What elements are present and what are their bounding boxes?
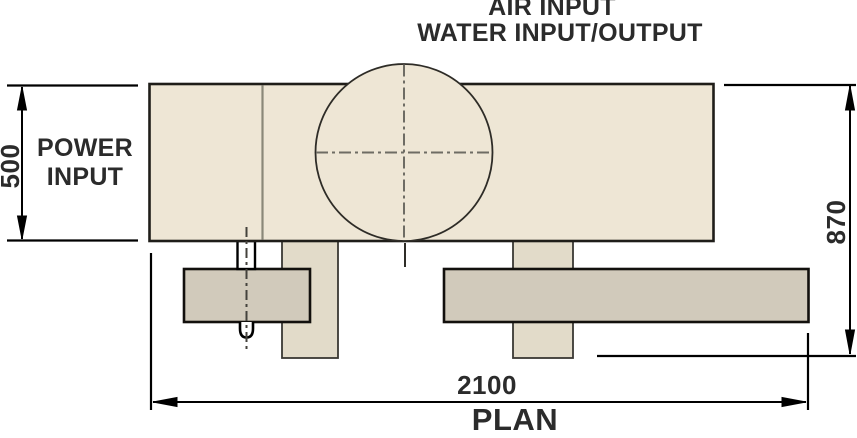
dim-2100-arrow-right xyxy=(782,398,806,407)
dim-870-arrow-bottom xyxy=(846,330,855,354)
dim-500-arrow-bottom xyxy=(18,216,27,239)
dim-500-arrow-top xyxy=(18,87,27,110)
dim-500-value: 500 xyxy=(0,116,25,216)
dim-2100-arrow-left xyxy=(153,398,177,407)
right-mounting-rail xyxy=(444,269,809,322)
view-title: PLAN xyxy=(415,404,615,436)
power-input-label: POWER INPUT xyxy=(20,134,150,192)
dim-870-arrow-top xyxy=(846,86,855,110)
dim-2100-value: 2100 xyxy=(407,370,567,400)
plan-drawing: AIR INPUT WATER INPUT/OUTPUT POWER INPUT… xyxy=(0,0,857,438)
dim-870-value: 870 xyxy=(821,172,851,272)
water-input-output-label: WATER INPUT/OUTPUT xyxy=(405,19,715,48)
